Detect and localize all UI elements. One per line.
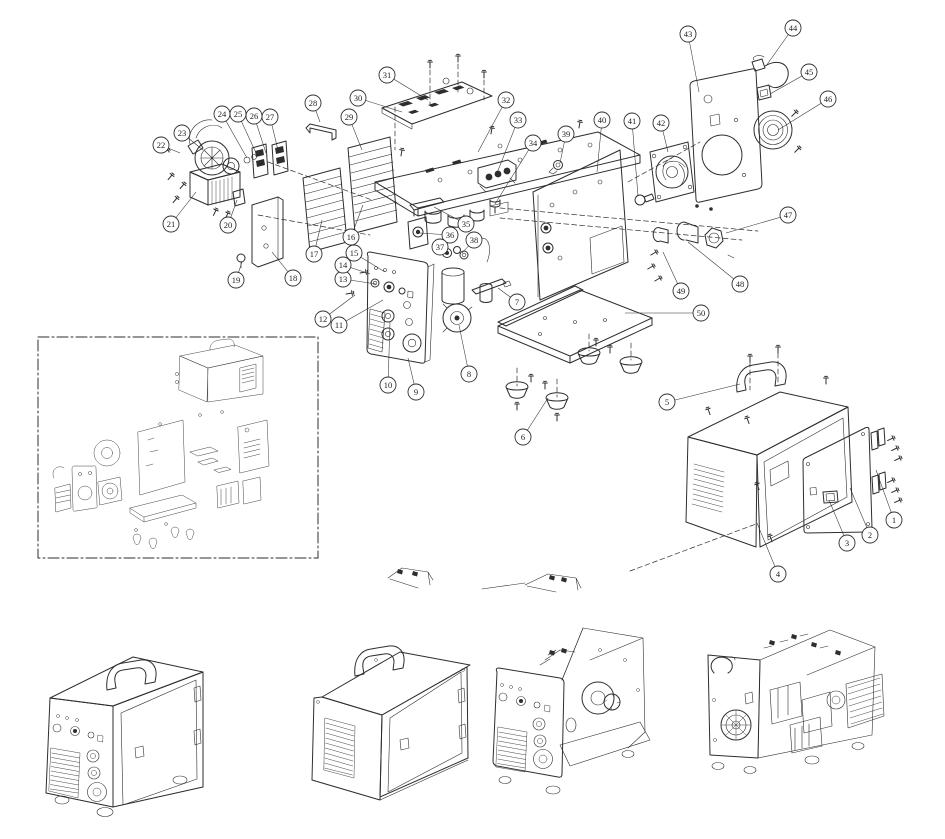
callout-50: 50 xyxy=(625,305,709,321)
case-cover xyxy=(686,345,852,547)
heatsink-small xyxy=(303,168,347,252)
callout-5: 5 xyxy=(659,384,740,410)
wire-feeder xyxy=(442,238,511,332)
svg-text:22: 22 xyxy=(157,140,166,150)
output-inductor-coil xyxy=(754,109,802,154)
screw-19 xyxy=(237,254,245,268)
callout-29: 29 xyxy=(341,109,362,150)
callout-38: 38 xyxy=(462,232,482,253)
svg-text:42: 42 xyxy=(657,118,666,128)
svg-text:24: 24 xyxy=(218,109,227,119)
svg-text:32: 32 xyxy=(502,95,511,105)
svg-text:33: 33 xyxy=(514,115,523,125)
inset-mini-exploded-view xyxy=(53,339,269,549)
svg-text:48: 48 xyxy=(736,279,745,289)
hinges-and-screws xyxy=(871,428,902,505)
callout-22: 22 xyxy=(153,137,180,153)
callout-7: 7 xyxy=(498,288,525,310)
svg-text:15: 15 xyxy=(350,248,359,258)
parts-diagram-page: 1234567891011121314151617181920212223242… xyxy=(0,0,945,839)
svg-text:26: 26 xyxy=(250,111,259,121)
svg-text:17: 17 xyxy=(310,249,319,259)
side-bracket-panel xyxy=(252,197,283,267)
callout-18: 18 xyxy=(272,252,301,286)
callout-4: 4 xyxy=(757,523,786,582)
svg-text:28: 28 xyxy=(309,98,318,108)
callout-8: 8 xyxy=(459,325,477,382)
view-chassis-front xyxy=(493,628,650,794)
control-pcb xyxy=(382,54,492,129)
callout-33: 33 xyxy=(497,112,526,173)
svg-text:6: 6 xyxy=(521,432,525,442)
callout-43: 43 xyxy=(680,26,699,92)
svg-text:37: 37 xyxy=(436,242,445,252)
callout-46: 46 xyxy=(778,91,836,130)
svg-text:30: 30 xyxy=(354,93,363,103)
svg-text:10: 10 xyxy=(384,380,393,390)
callout-49: 49 xyxy=(663,252,689,299)
svg-text:21: 21 xyxy=(167,219,176,229)
callout-39: 39 xyxy=(558,126,574,163)
svg-text:40: 40 xyxy=(598,115,607,125)
callout-layer: 1234567891011121314151617181920212223242… xyxy=(153,20,902,582)
callout-19: 19 xyxy=(228,262,244,288)
callout-30: 30 xyxy=(350,90,402,112)
svg-text:41: 41 xyxy=(628,116,637,126)
svg-text:46: 46 xyxy=(824,94,833,104)
svg-text:35: 35 xyxy=(462,219,471,229)
svg-text:11: 11 xyxy=(335,320,343,330)
callout-44: 44 xyxy=(766,20,801,66)
mounting-rod xyxy=(306,124,336,140)
partial-parts xyxy=(388,568,581,592)
svg-text:2: 2 xyxy=(868,530,872,540)
front-panel xyxy=(346,252,434,363)
view-chassis-rear xyxy=(708,630,884,774)
svg-text:43: 43 xyxy=(684,29,693,39)
callout-9: 9 xyxy=(408,358,424,400)
cooling-fan xyxy=(650,142,694,202)
transformer xyxy=(190,164,240,219)
heatsink-large xyxy=(348,137,397,233)
callout-42: 42 xyxy=(653,115,669,152)
svg-text:34: 34 xyxy=(529,138,538,148)
svg-text:39: 39 xyxy=(562,129,571,139)
svg-text:31: 31 xyxy=(383,70,392,80)
callout-48: 48 xyxy=(688,242,748,292)
assembly-axes xyxy=(258,107,758,571)
svg-text:9: 9 xyxy=(414,387,418,397)
rear-panel xyxy=(690,69,762,202)
callout-6: 6 xyxy=(515,398,548,445)
side-door-panel xyxy=(803,427,872,533)
svg-text:16: 16 xyxy=(347,232,356,242)
callout-2: 2 xyxy=(850,488,878,543)
svg-text:18: 18 xyxy=(289,273,298,283)
callout-47: 47 xyxy=(726,207,796,233)
callout-1: 1 xyxy=(876,470,902,528)
callout-3: 3 xyxy=(829,500,855,551)
svg-text:50: 50 xyxy=(697,308,706,318)
view-complete-machine xyxy=(46,657,203,817)
svg-text:13: 13 xyxy=(339,274,348,284)
svg-text:23: 23 xyxy=(178,128,187,138)
svg-text:19: 19 xyxy=(232,275,241,285)
svg-text:38: 38 xyxy=(470,235,479,245)
callout-45: 45 xyxy=(770,64,817,94)
mount-plates xyxy=(252,141,288,178)
svg-text:12: 12 xyxy=(319,314,328,324)
callout-28: 28 xyxy=(305,95,321,122)
svg-text:20: 20 xyxy=(224,220,233,230)
inset-overview-box xyxy=(38,337,318,558)
svg-text:47: 47 xyxy=(784,210,793,220)
callout-11: 11 xyxy=(331,300,383,333)
svg-text:25: 25 xyxy=(234,109,243,119)
svg-text:36: 36 xyxy=(446,230,455,240)
callout-37: 37 xyxy=(432,239,448,255)
svg-text:49: 49 xyxy=(677,286,686,296)
svg-text:29: 29 xyxy=(345,112,354,122)
svg-text:45: 45 xyxy=(805,67,814,77)
svg-text:1: 1 xyxy=(892,515,896,525)
svg-text:14: 14 xyxy=(339,260,348,270)
svg-text:3: 3 xyxy=(845,538,849,548)
callout-13: 13 xyxy=(335,271,376,287)
svg-text:44: 44 xyxy=(789,23,798,33)
svg-text:5: 5 xyxy=(665,397,669,407)
power-switch xyxy=(757,85,771,100)
callout-41: 41 xyxy=(624,113,640,196)
svg-text:7: 7 xyxy=(515,297,519,307)
callout-17: 17 xyxy=(306,220,322,262)
rubber-feet xyxy=(506,334,642,421)
svg-text:27: 27 xyxy=(266,112,275,122)
svg-text:8: 8 xyxy=(467,369,471,379)
callout-21: 21 xyxy=(163,192,196,232)
view-housing-cover xyxy=(312,646,470,800)
